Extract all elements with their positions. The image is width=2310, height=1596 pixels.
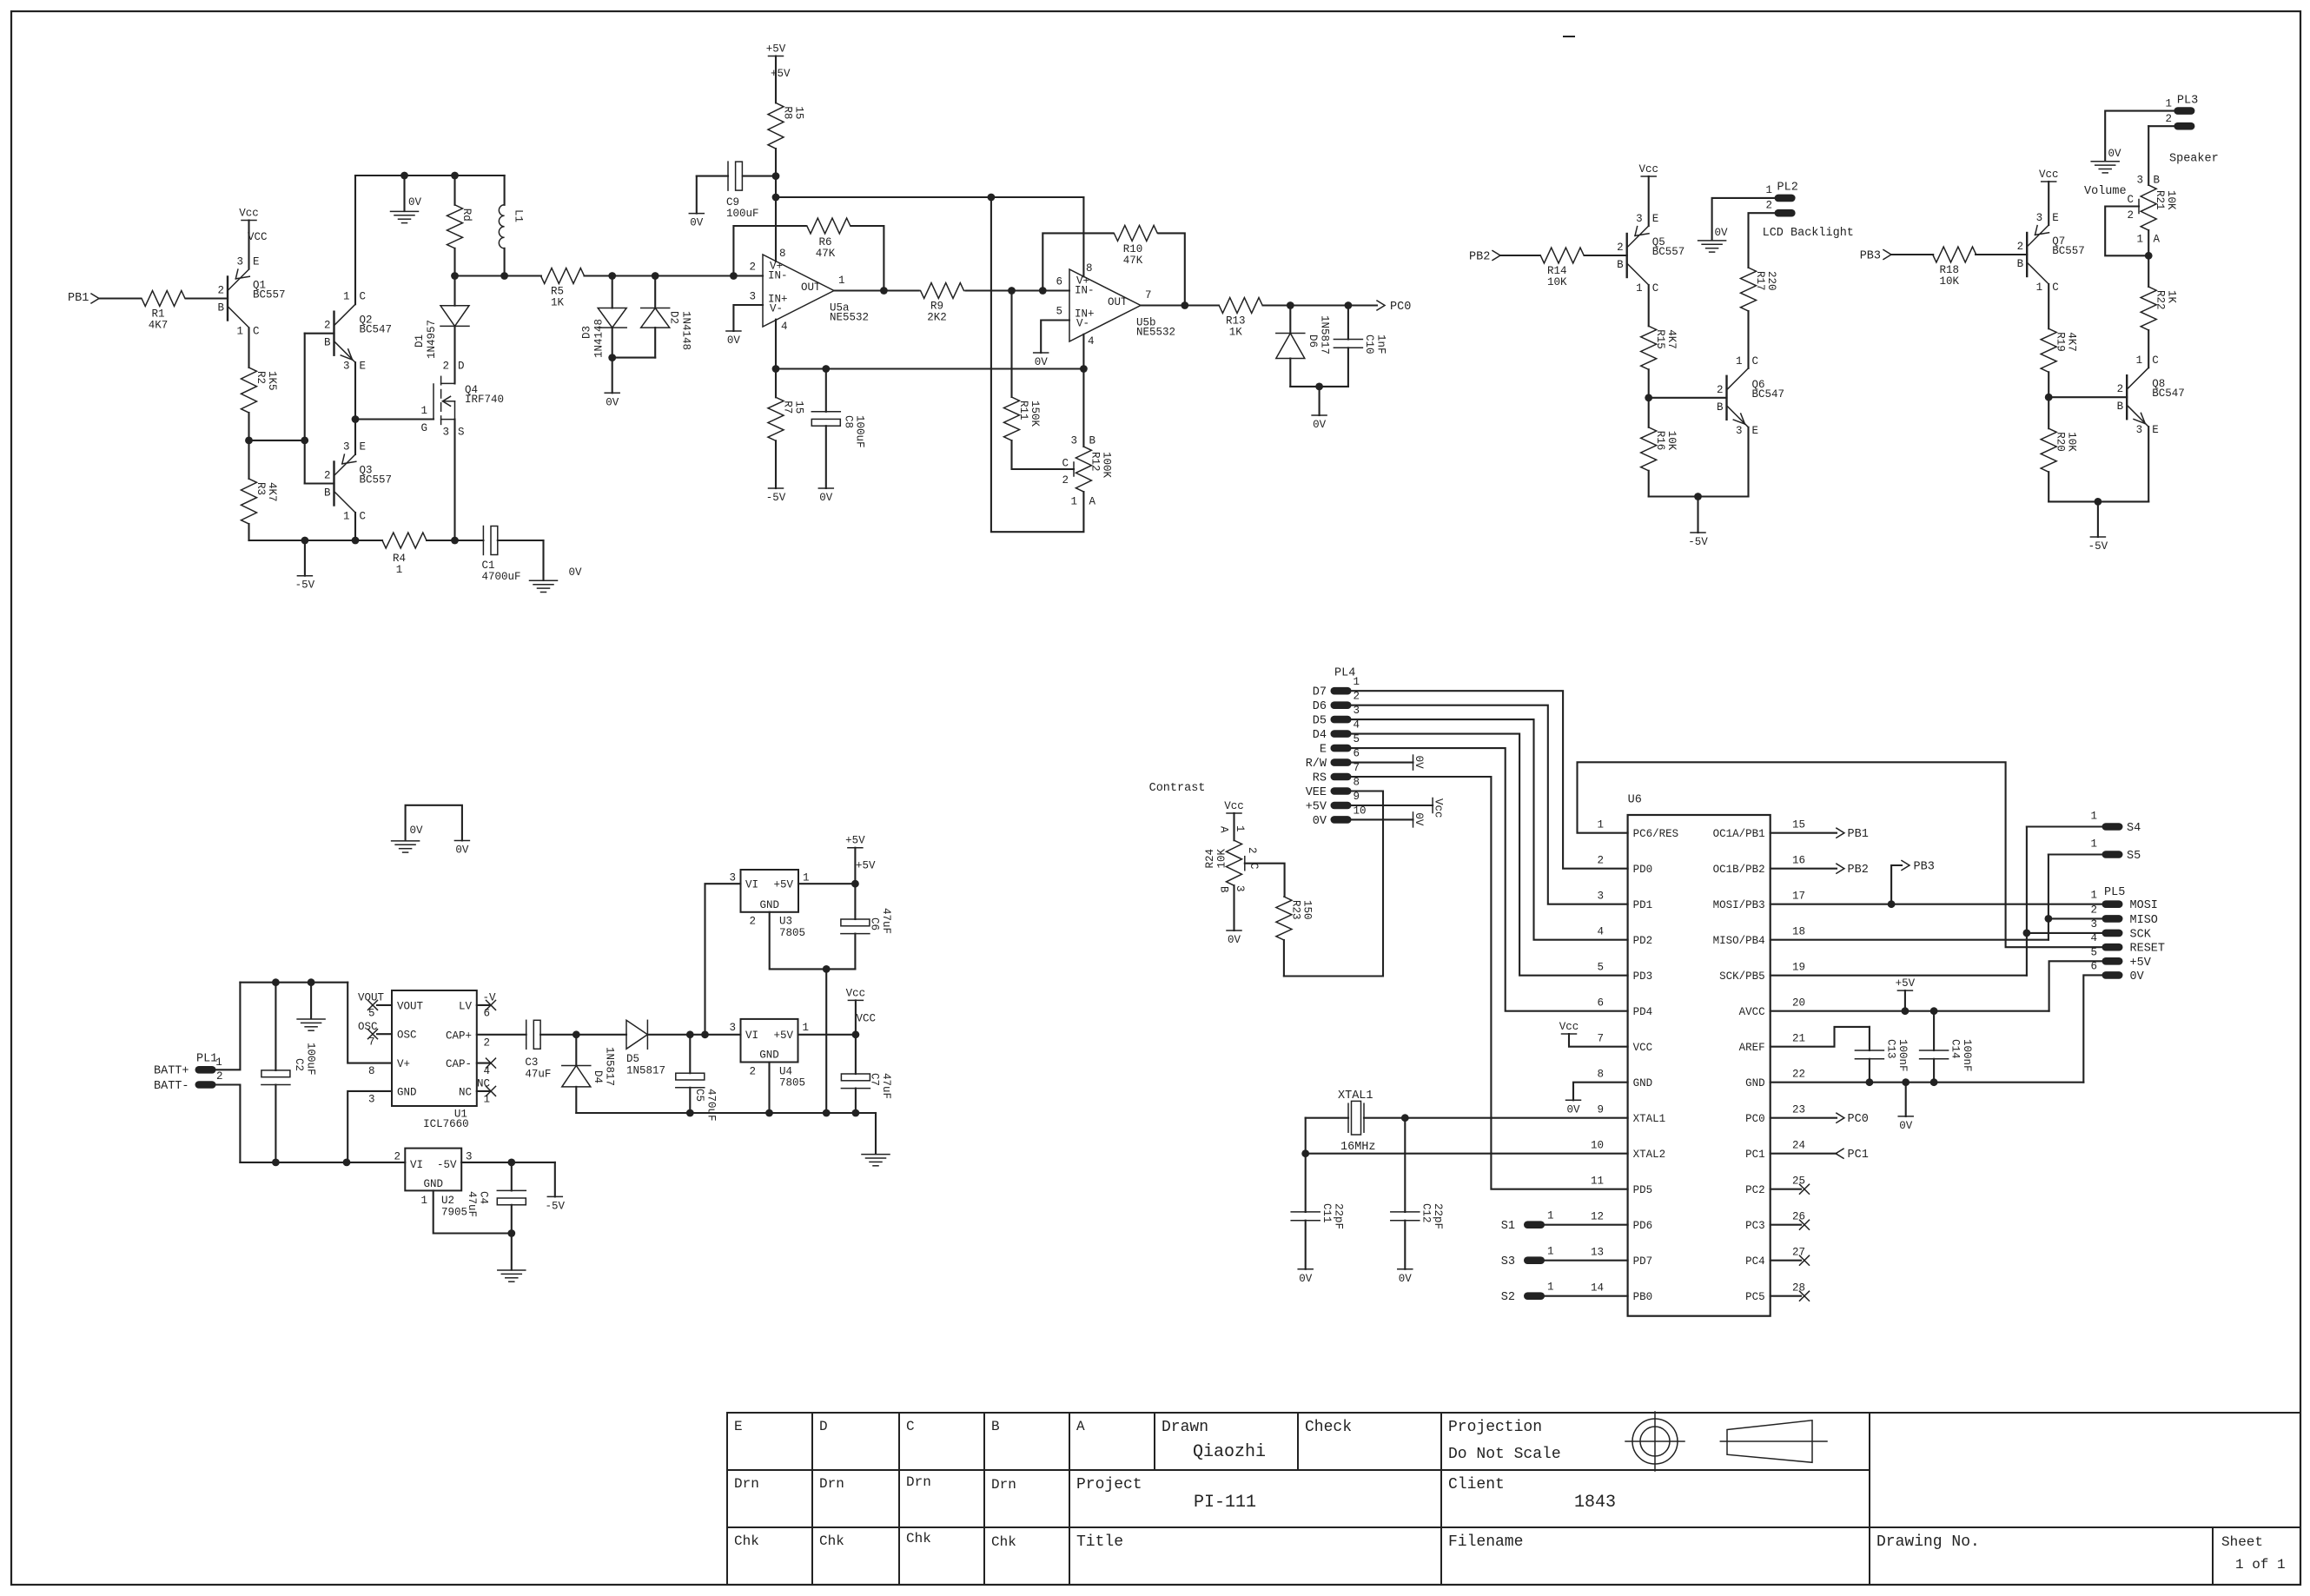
- svg-text:+5V: +5V: [2130, 957, 2152, 970]
- svg-text:OUT: OUT: [1108, 296, 1128, 308]
- svg-text:BC557: BC557: [360, 474, 393, 487]
- svg-text:0V: 0V: [1228, 934, 1241, 946]
- svg-text:Rd: Rd: [460, 209, 473, 222]
- svg-text:1: 1: [343, 291, 350, 303]
- svg-text:S2: S2: [1501, 1291, 1515, 1304]
- svg-text:4: 4: [1597, 926, 1604, 938]
- svg-text:S3: S3: [1501, 1255, 1515, 1268]
- svg-text:R21: R21: [2154, 190, 2166, 210]
- svg-text:3: 3: [729, 1022, 736, 1034]
- svg-text:1: 1: [2036, 281, 2043, 294]
- svg-text:-5V: -5V: [437, 1159, 457, 1171]
- svg-text:S5: S5: [2127, 850, 2141, 863]
- svg-text:LV: LV: [459, 1000, 473, 1012]
- svg-text:IN-: IN-: [1075, 285, 1095, 297]
- svg-text:GND: GND: [759, 1050, 779, 1062]
- svg-text:GND: GND: [759, 899, 779, 911]
- svg-text:AREF: AREF: [1739, 1042, 1765, 1054]
- svg-text:-5V: -5V: [1688, 536, 1708, 548]
- svg-text:PB2: PB2: [1848, 864, 1869, 877]
- svg-text:1: 1: [2136, 354, 2143, 367]
- svg-text:R5: R5: [551, 286, 564, 298]
- svg-text:0V: 0V: [1715, 227, 1729, 239]
- svg-text:Chk: Chk: [734, 1533, 759, 1549]
- svg-text:R22: R22: [2154, 290, 2167, 310]
- svg-text:R13: R13: [1226, 315, 1246, 328]
- svg-text:NE5532: NE5532: [1136, 327, 1175, 339]
- svg-text:CAP-: CAP-: [446, 1058, 472, 1070]
- svg-text:8: 8: [1597, 1069, 1604, 1081]
- svg-text:1nF: 1nF: [1375, 334, 1387, 354]
- svg-text:PC0: PC0: [1390, 301, 1411, 314]
- svg-text:47uF: 47uF: [525, 1069, 551, 1081]
- svg-text:R2: R2: [255, 371, 267, 384]
- svg-text:PL1: PL1: [196, 1053, 217, 1066]
- svg-text:7: 7: [368, 1036, 375, 1049]
- svg-text:100uF: 100uF: [726, 208, 759, 220]
- svg-text:PD2: PD2: [1633, 935, 1653, 947]
- svg-text:22pF: 22pF: [1432, 1203, 1444, 1229]
- svg-text:C: C: [1062, 458, 1069, 470]
- svg-text:SCK/PB5: SCK/PB5: [1719, 970, 1765, 983]
- svg-text:Drawing No.: Drawing No.: [1876, 1533, 1980, 1551]
- svg-text:B: B: [1617, 259, 1624, 271]
- svg-text:15: 15: [1792, 819, 1805, 831]
- svg-text:1N5817: 1N5817: [604, 1047, 616, 1086]
- svg-text:2: 2: [2117, 383, 2124, 395]
- svg-text:R7: R7: [782, 401, 794, 414]
- svg-text:B: B: [1089, 435, 1096, 447]
- svg-text:16MHz: 16MHz: [1340, 1141, 1376, 1154]
- svg-text:U3: U3: [779, 916, 792, 928]
- svg-text:22: 22: [1792, 1069, 1805, 1081]
- svg-text:Drn: Drn: [819, 1476, 844, 1492]
- svg-text:1: 1: [2090, 811, 2097, 823]
- svg-text:1N5817: 1N5817: [1319, 315, 1331, 354]
- svg-text:C: C: [360, 291, 367, 303]
- svg-text:2: 2: [442, 361, 449, 373]
- svg-text:Drn: Drn: [734, 1476, 759, 1492]
- svg-text:C5: C5: [693, 1089, 705, 1102]
- svg-text:+5V: +5V: [1306, 801, 1327, 814]
- svg-text:R14: R14: [1547, 265, 1567, 277]
- svg-text:Title: Title: [1076, 1533, 1123, 1551]
- svg-text:PC1: PC1: [1745, 1149, 1765, 1161]
- svg-text:OSC: OSC: [397, 1030, 417, 1042]
- svg-text:1: 1: [1736, 355, 1743, 368]
- svg-text:4: 4: [484, 1065, 491, 1077]
- svg-text:22pF: 22pF: [1333, 1203, 1345, 1229]
- svg-text:4K7: 4K7: [1665, 329, 1678, 349]
- svg-text:NC: NC: [459, 1086, 472, 1098]
- svg-text:PD5: PD5: [1633, 1184, 1653, 1196]
- svg-text:150: 150: [1301, 900, 1313, 920]
- svg-text:R1: R1: [151, 308, 164, 321]
- svg-text:BATT+: BATT+: [154, 1065, 189, 1078]
- svg-text:Vcc: Vcc: [2039, 169, 2059, 181]
- svg-text:-5V: -5V: [546, 1200, 566, 1212]
- svg-text:PB1: PB1: [68, 292, 89, 305]
- svg-text:2: 2: [216, 1070, 223, 1083]
- svg-text:D6: D6: [1313, 700, 1327, 713]
- svg-text:8: 8: [1354, 777, 1360, 789]
- svg-text:4: 4: [781, 321, 788, 333]
- svg-text:100nF: 100nF: [1896, 1039, 1909, 1072]
- svg-text:MOSI/PB3: MOSI/PB3: [1713, 899, 1765, 911]
- svg-text:XTAL1: XTAL1: [1633, 1113, 1666, 1125]
- svg-text:0V: 0V: [690, 217, 704, 229]
- svg-text:PC5: PC5: [1745, 1291, 1765, 1303]
- svg-text:1: 1: [1547, 1210, 1554, 1222]
- svg-text:0V: 0V: [819, 492, 833, 504]
- svg-text:5: 5: [1597, 962, 1604, 974]
- svg-text:10K: 10K: [1665, 431, 1678, 451]
- svg-text:R16: R16: [1654, 431, 1666, 451]
- svg-text:C12: C12: [1420, 1203, 1433, 1223]
- svg-text:Chk: Chk: [991, 1534, 1016, 1550]
- svg-text:BATT-: BATT-: [154, 1080, 189, 1093]
- svg-text:AVCC: AVCC: [1739, 1006, 1765, 1018]
- svg-text:R23: R23: [1289, 900, 1301, 920]
- svg-text:Do Not Scale: Do Not Scale: [1448, 1446, 1561, 1463]
- svg-text:16: 16: [1792, 855, 1805, 867]
- svg-text:2: 2: [1246, 847, 1258, 854]
- svg-text:4K7: 4K7: [266, 482, 278, 502]
- svg-text:7805: 7805: [779, 1077, 805, 1089]
- svg-text:1: 1: [2136, 234, 2143, 246]
- svg-text:3: 3: [2136, 175, 2143, 187]
- svg-text:B: B: [1717, 401, 1724, 414]
- svg-text:R3: R3: [255, 482, 267, 495]
- svg-text:PL3: PL3: [2177, 95, 2198, 108]
- svg-text:GND: GND: [1745, 1077, 1765, 1089]
- svg-text:VCC: VCC: [857, 1013, 877, 1025]
- svg-text:D: D: [458, 361, 465, 373]
- svg-text:1N5817: 1N5817: [626, 1065, 665, 1077]
- svg-text:PC4: PC4: [1745, 1255, 1765, 1268]
- svg-text:PB3: PB3: [1914, 861, 1935, 874]
- svg-text:7: 7: [1354, 762, 1360, 774]
- svg-text:3: 3: [1736, 425, 1743, 437]
- svg-text:IN-: IN-: [768, 270, 788, 282]
- svg-text:14: 14: [1591, 1282, 1604, 1295]
- svg-text:PD0: PD0: [1633, 864, 1653, 876]
- svg-text:1: 1: [1636, 282, 1643, 295]
- svg-text:PB1: PB1: [1848, 828, 1869, 841]
- svg-text:2: 2: [484, 1036, 491, 1049]
- svg-text:100uF: 100uF: [854, 415, 866, 448]
- svg-text:9: 9: [1354, 791, 1360, 803]
- svg-text:B: B: [324, 337, 331, 349]
- svg-text:C: C: [360, 511, 367, 523]
- svg-text:8: 8: [779, 248, 786, 260]
- svg-text:1: 1: [1547, 1281, 1554, 1294]
- svg-text:C4: C4: [478, 1191, 490, 1204]
- svg-text:D: D: [819, 1419, 828, 1434]
- svg-text:+5V: +5V: [856, 860, 876, 872]
- svg-text:1: 1: [803, 872, 810, 884]
- svg-text:2: 2: [324, 320, 331, 332]
- svg-text:D4: D4: [592, 1070, 604, 1083]
- svg-text:7905: 7905: [441, 1206, 467, 1218]
- svg-text:-5V: -5V: [2088, 540, 2108, 553]
- svg-text:VCC: VCC: [248, 231, 268, 243]
- svg-text:6: 6: [1354, 748, 1360, 760]
- svg-text:1N4148: 1N4148: [593, 319, 606, 358]
- svg-text:1: 1: [1070, 496, 1077, 508]
- svg-text:100uF: 100uF: [305, 1043, 317, 1076]
- svg-text:C: C: [2052, 281, 2059, 294]
- svg-text:0V: 0V: [2108, 148, 2122, 160]
- svg-text:18: 18: [1792, 926, 1805, 938]
- svg-text:11: 11: [1591, 1175, 1604, 1188]
- svg-text:1843: 1843: [1574, 1493, 1616, 1513]
- svg-text:+5V: +5V: [845, 835, 865, 847]
- svg-text:PB2: PB2: [1469, 251, 1490, 264]
- svg-text:4: 4: [2090, 932, 2097, 944]
- svg-text:XTAL2: XTAL2: [1633, 1149, 1666, 1161]
- svg-text:4K7: 4K7: [2066, 332, 2078, 352]
- svg-text:VCC: VCC: [1633, 1042, 1653, 1054]
- svg-text:R19: R19: [2055, 332, 2067, 352]
- svg-text:23: 23: [1792, 1104, 1805, 1116]
- svg-text:A: A: [1218, 826, 1230, 833]
- svg-text:S: S: [458, 427, 465, 439]
- svg-text:2: 2: [1597, 855, 1604, 867]
- svg-text:1: 1: [420, 405, 427, 417]
- svg-text:S4: S4: [2127, 822, 2141, 835]
- svg-text:47uF: 47uF: [880, 908, 892, 934]
- svg-text:PL2: PL2: [1777, 182, 1798, 195]
- svg-text:28: 28: [1792, 1282, 1805, 1295]
- svg-text:10K: 10K: [1547, 276, 1567, 288]
- svg-text:Qiaozhi: Qiaozhi: [1193, 1442, 1266, 1462]
- svg-text:47uF: 47uF: [880, 1073, 892, 1099]
- svg-text:Contrast: Contrast: [1149, 782, 1206, 795]
- svg-text:+5V: +5V: [1896, 977, 1916, 990]
- svg-text:2: 2: [1354, 691, 1360, 703]
- svg-text:VOUT: VOUT: [358, 992, 385, 1004]
- svg-text:1: 1: [803, 1022, 810, 1034]
- svg-text:6: 6: [2090, 960, 2097, 972]
- svg-text:PD6: PD6: [1633, 1220, 1653, 1232]
- svg-text:3: 3: [442, 427, 449, 439]
- svg-text:D6: D6: [1307, 334, 1319, 348]
- svg-text:Vcc: Vcc: [239, 208, 259, 220]
- svg-text:GND: GND: [397, 1086, 417, 1098]
- svg-text:L1: L1: [513, 209, 525, 222]
- svg-text:-5V: -5V: [766, 492, 786, 504]
- svg-text:24: 24: [1792, 1140, 1805, 1152]
- svg-text:PC0: PC0: [1745, 1113, 1765, 1125]
- svg-text:4700uF: 4700uF: [482, 571, 521, 583]
- svg-text:100nF: 100nF: [1961, 1039, 1973, 1072]
- svg-text:PC2: PC2: [1745, 1184, 1765, 1196]
- svg-text:E: E: [734, 1419, 743, 1434]
- svg-text:1: 1: [838, 275, 845, 287]
- svg-text:PC6/RES: PC6/RES: [1633, 828, 1679, 840]
- svg-text:1 of 1: 1 of 1: [2235, 1557, 2286, 1573]
- svg-text:S1: S1: [1501, 1220, 1515, 1233]
- svg-text:U4: U4: [779, 1065, 792, 1077]
- svg-text:PD1: PD1: [1633, 899, 1653, 911]
- svg-text:C11: C11: [1320, 1203, 1333, 1223]
- svg-text:D1: D1: [414, 334, 426, 348]
- svg-text:ICL7660: ICL7660: [423, 1118, 469, 1130]
- svg-text:3: 3: [2090, 918, 2097, 930]
- svg-text:2: 2: [2127, 209, 2134, 222]
- svg-text:B: B: [1218, 886, 1230, 893]
- svg-text:RS: RS: [1313, 772, 1327, 785]
- svg-text:PC1: PC1: [1848, 1149, 1869, 1162]
- svg-text:E: E: [360, 361, 367, 373]
- svg-text:100K: 100K: [1101, 452, 1113, 479]
- svg-text:C: C: [2127, 194, 2134, 206]
- svg-text:PL5: PL5: [2104, 886, 2125, 899]
- svg-text:B: B: [324, 487, 331, 500]
- svg-text:VOUT: VOUT: [397, 1000, 424, 1012]
- svg-text:E: E: [360, 441, 367, 454]
- svg-text:-V: -V: [483, 992, 497, 1004]
- svg-text:6: 6: [1056, 276, 1062, 288]
- svg-text:6: 6: [1597, 997, 1604, 1010]
- svg-text:2: 2: [394, 1151, 400, 1163]
- svg-text:1: 1: [1354, 676, 1360, 688]
- svg-text:Vcc: Vcc: [1638, 163, 1658, 175]
- svg-text:R6: R6: [818, 236, 831, 248]
- svg-text:26: 26: [1792, 1211, 1805, 1223]
- svg-text:2: 2: [749, 916, 756, 928]
- svg-text:2: 2: [749, 262, 756, 274]
- svg-text:7805: 7805: [779, 927, 805, 939]
- svg-text:R20: R20: [2055, 432, 2067, 452]
- svg-text:13: 13: [1591, 1247, 1604, 1259]
- svg-text:PC0: PC0: [1848, 1113, 1869, 1126]
- svg-text:0V: 0V: [1566, 1103, 1580, 1116]
- svg-text:D3: D3: [581, 326, 593, 339]
- svg-text:PB3: PB3: [1860, 250, 1881, 263]
- svg-text:27: 27: [1792, 1247, 1805, 1259]
- svg-text:OC1A/PB1: OC1A/PB1: [1713, 828, 1765, 840]
- svg-text:5: 5: [1354, 733, 1360, 745]
- svg-text:Projection: Projection: [1448, 1419, 1542, 1436]
- svg-text:C: C: [1752, 355, 1759, 368]
- svg-text:15: 15: [793, 106, 805, 119]
- svg-text:GND: GND: [423, 1178, 443, 1190]
- svg-text:+5V: +5V: [771, 68, 791, 80]
- svg-text:0V: 0V: [1399, 1273, 1413, 1285]
- svg-text:0V: 0V: [2130, 970, 2145, 983]
- svg-text:2: 2: [217, 285, 224, 297]
- svg-text:Volume: Volume: [2084, 185, 2127, 198]
- svg-text:19: 19: [1792, 962, 1805, 974]
- svg-text:R9: R9: [930, 301, 943, 313]
- svg-text:VI: VI: [410, 1159, 423, 1171]
- svg-text:2: 2: [1765, 200, 1772, 212]
- svg-text:3: 3: [1234, 885, 1246, 892]
- svg-text:0V: 0V: [1313, 815, 1327, 828]
- svg-text:B: B: [991, 1419, 1000, 1434]
- svg-text:3: 3: [343, 441, 350, 454]
- svg-text:C3: C3: [525, 1056, 538, 1069]
- svg-text:E: E: [1652, 213, 1659, 225]
- svg-text:3: 3: [729, 872, 736, 884]
- svg-text:BC557: BC557: [253, 289, 286, 301]
- svg-text:R17: R17: [1754, 271, 1766, 291]
- svg-text:5: 5: [1056, 306, 1062, 318]
- svg-text:7: 7: [1145, 289, 1152, 301]
- svg-text:OSC: OSC: [358, 1021, 378, 1033]
- svg-text:E: E: [1752, 425, 1759, 437]
- svg-text:0V: 0V: [569, 566, 583, 579]
- svg-text:0V: 0V: [606, 396, 619, 408]
- svg-text:OUT: OUT: [801, 281, 821, 294]
- svg-text:+5V: +5V: [773, 1030, 793, 1042]
- svg-text:3: 3: [2036, 212, 2043, 224]
- svg-text:21: 21: [1792, 1033, 1805, 1045]
- svg-text:3: 3: [236, 256, 243, 268]
- svg-text:10: 10: [1354, 805, 1367, 817]
- svg-text:LCD Backlight: LCD Backlight: [1763, 227, 1854, 240]
- svg-text:1: 1: [236, 326, 243, 338]
- svg-text:0V: 0V: [1035, 356, 1049, 368]
- svg-text:B: B: [217, 302, 224, 315]
- svg-text:1: 1: [396, 564, 403, 576]
- svg-text:1K5: 1K5: [266, 371, 278, 391]
- svg-text:9: 9: [1597, 1104, 1604, 1116]
- svg-text:D5: D5: [626, 1053, 639, 1065]
- svg-text:150K: 150K: [1029, 401, 1041, 427]
- svg-text:+5V: +5V: [773, 879, 793, 891]
- svg-text:C6: C6: [869, 917, 881, 930]
- svg-text:Filename: Filename: [1448, 1533, 1523, 1551]
- svg-text:D2: D2: [668, 311, 680, 324]
- svg-text:Vcc: Vcc: [1224, 800, 1244, 812]
- svg-text:A: A: [2154, 234, 2161, 246]
- svg-text:3: 3: [1636, 213, 1643, 225]
- svg-text:2: 2: [2090, 904, 2097, 916]
- svg-text:25: 25: [1792, 1175, 1805, 1188]
- svg-text:0V: 0V: [1899, 1120, 1913, 1132]
- svg-text:C: C: [253, 326, 260, 338]
- svg-text:Drn: Drn: [906, 1474, 931, 1490]
- svg-text:D4: D4: [1313, 729, 1327, 742]
- svg-text:1: 1: [484, 1093, 491, 1105]
- svg-text:C14: C14: [1949, 1039, 1962, 1059]
- svg-text:RESET: RESET: [2130, 943, 2166, 956]
- svg-text:10K: 10K: [2165, 190, 2177, 210]
- svg-text:4: 4: [1354, 719, 1360, 732]
- svg-text:Check: Check: [1305, 1419, 1352, 1436]
- svg-text:5: 5: [368, 1007, 375, 1019]
- svg-text:OC1B/PB2: OC1B/PB2: [1713, 864, 1765, 876]
- svg-text:Speaker: Speaker: [2169, 153, 2219, 166]
- svg-text:1: 1: [1547, 1246, 1554, 1258]
- svg-text:C: C: [2152, 354, 2159, 367]
- svg-text:10K: 10K: [1216, 848, 1228, 868]
- svg-text:Vcc: Vcc: [1559, 1021, 1579, 1033]
- svg-text:2K2: 2K2: [927, 312, 947, 324]
- svg-text:1N4957: 1N4957: [426, 320, 438, 359]
- svg-text:3: 3: [1597, 891, 1604, 903]
- svg-text:PD7: PD7: [1633, 1255, 1653, 1268]
- svg-text:C9: C9: [726, 196, 739, 209]
- svg-text:-5V: -5V: [295, 579, 315, 592]
- svg-text:3: 3: [1070, 435, 1077, 447]
- svg-text:R18: R18: [1939, 264, 1959, 276]
- svg-text:4K7: 4K7: [149, 320, 169, 332]
- svg-text:10K: 10K: [2066, 432, 2078, 452]
